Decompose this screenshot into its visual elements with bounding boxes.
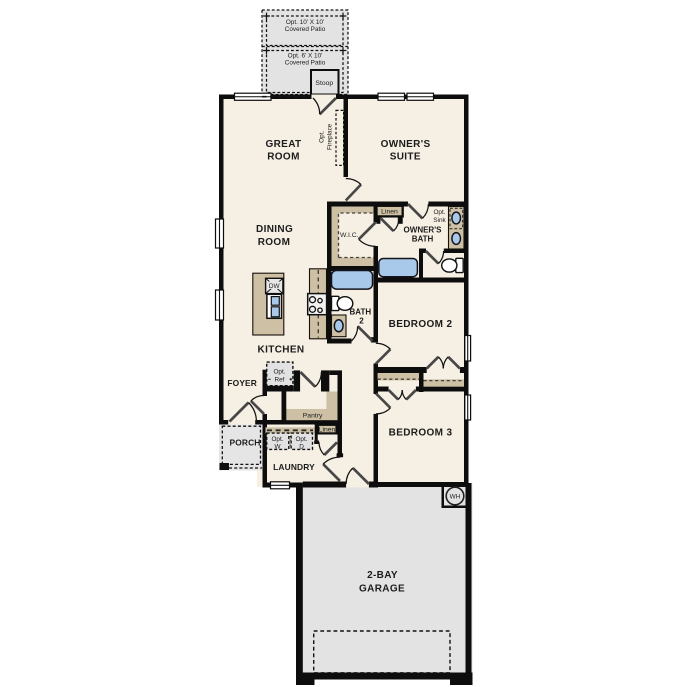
svg-text:Opt.: Opt.	[295, 436, 307, 443]
svg-text:Opt.: Opt.	[271, 436, 283, 443]
svg-text:OWNER'S: OWNER'S	[381, 139, 431, 150]
svg-text:Ref: Ref	[275, 377, 285, 384]
svg-text:KITCHEN: KITCHEN	[258, 345, 305, 356]
svg-text:OWNER'S: OWNER'S	[404, 226, 443, 235]
svg-text:LAUNDRY: LAUNDRY	[273, 462, 315, 472]
svg-text:Sink: Sink	[433, 217, 446, 224]
svg-text:GARAGE: GARAGE	[359, 583, 405, 594]
svg-text:Linen: Linen	[381, 209, 398, 216]
svg-text:FOYER: FOYER	[227, 378, 257, 388]
svg-text:BEDROOM 3: BEDROOM 3	[389, 428, 453, 439]
svg-text:Fireplace: Fireplace	[326, 123, 333, 150]
svg-text:PORCH: PORCH	[230, 438, 261, 448]
svg-text:Opt.: Opt.	[318, 131, 325, 143]
svg-text:2-BAY: 2-BAY	[367, 570, 398, 581]
svg-text:SUITE: SUITE	[390, 152, 421, 163]
svg-text:W: W	[274, 444, 281, 451]
svg-text:GREAT: GREAT	[265, 139, 301, 150]
svg-text:DINING: DINING	[256, 224, 293, 235]
svg-text:ROOM: ROOM	[267, 152, 300, 163]
svg-text:D: D	[299, 444, 304, 451]
svg-text:2: 2	[359, 317, 364, 326]
svg-text:Pantry: Pantry	[303, 413, 323, 420]
svg-text:W.I.C.: W.I.C.	[340, 232, 359, 239]
svg-text:DW: DW	[269, 283, 281, 290]
svg-text:BATH: BATH	[349, 307, 371, 316]
svg-text:Covered Patio: Covered Patio	[285, 59, 326, 66]
svg-text:BATH: BATH	[412, 234, 434, 243]
svg-text:Stoop: Stoop	[315, 80, 333, 87]
svg-text:ROOM: ROOM	[258, 237, 291, 248]
svg-text:Opt.: Opt.	[433, 209, 445, 216]
svg-text:WH: WH	[450, 494, 461, 501]
svg-text:BEDROOM 2: BEDROOM 2	[389, 319, 453, 330]
svg-text:Linen: Linen	[319, 427, 336, 434]
svg-text:Opt.: Opt.	[273, 369, 285, 376]
svg-text:Covered Patio: Covered Patio	[285, 26, 326, 33]
